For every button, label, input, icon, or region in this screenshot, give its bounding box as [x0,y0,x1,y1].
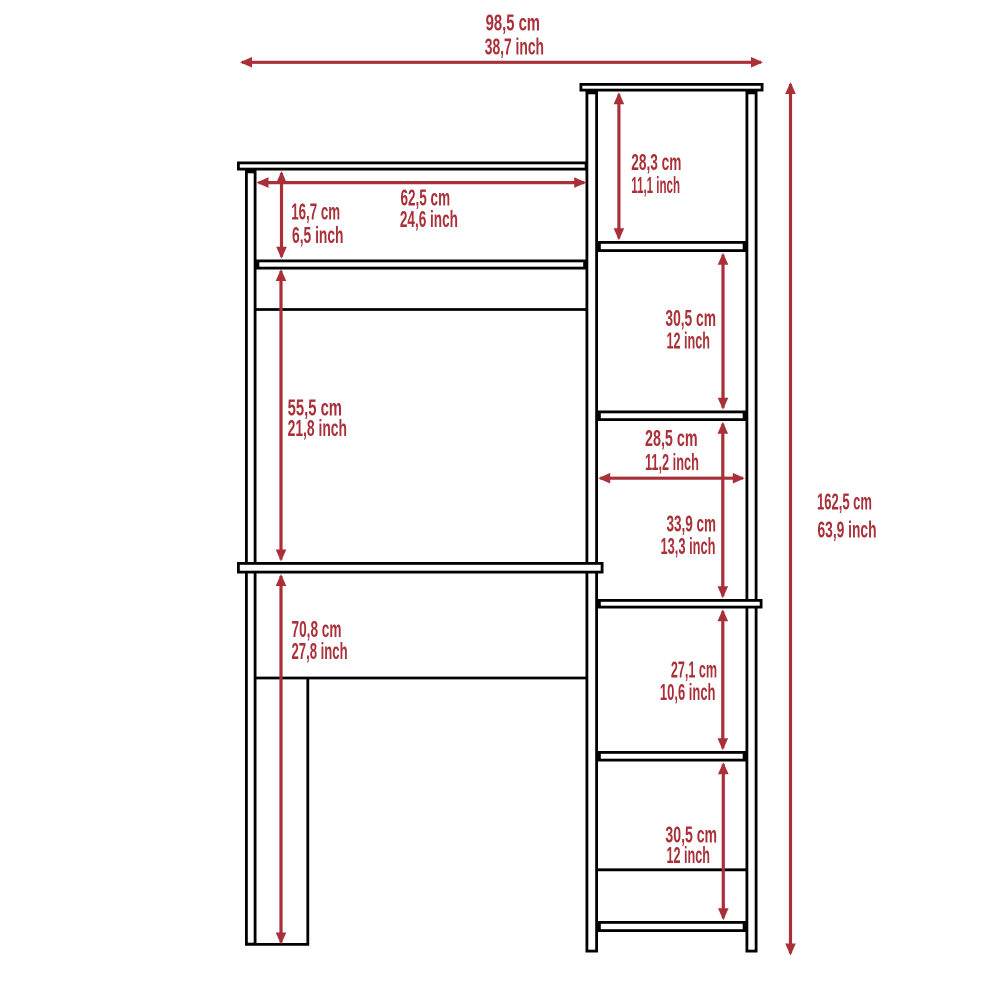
svg-text:27,8 inch: 27,8 inch [292,638,348,664]
svg-text:16,7 cm: 16,7 cm [291,199,340,225]
svg-text:24,6 inch: 24,6 inch [400,206,458,232]
svg-text:10,6 inch: 10,6 inch [660,679,716,705]
svg-text:28,5 cm: 28,5 cm [645,425,698,451]
svg-text:13,3 inch: 13,3 inch [661,533,716,559]
svg-text:12 inch: 12 inch [667,842,711,868]
svg-text:162,5 cm: 162,5 cm [817,489,872,515]
svg-text:11,2 inch: 11,2 inch [645,449,699,475]
svg-text:6,5 inch: 6,5 inch [292,222,344,248]
svg-text:38,7 inch: 38,7 inch [485,34,544,60]
svg-text:12 inch: 12 inch [667,327,711,353]
svg-text:11,1 inch: 11,1 inch [631,172,680,198]
svg-text:21,8 inch: 21,8 inch [288,415,347,441]
svg-text:98,5 cm: 98,5 cm [486,10,540,36]
svg-text:63,9 inch: 63,9 inch [818,517,877,543]
